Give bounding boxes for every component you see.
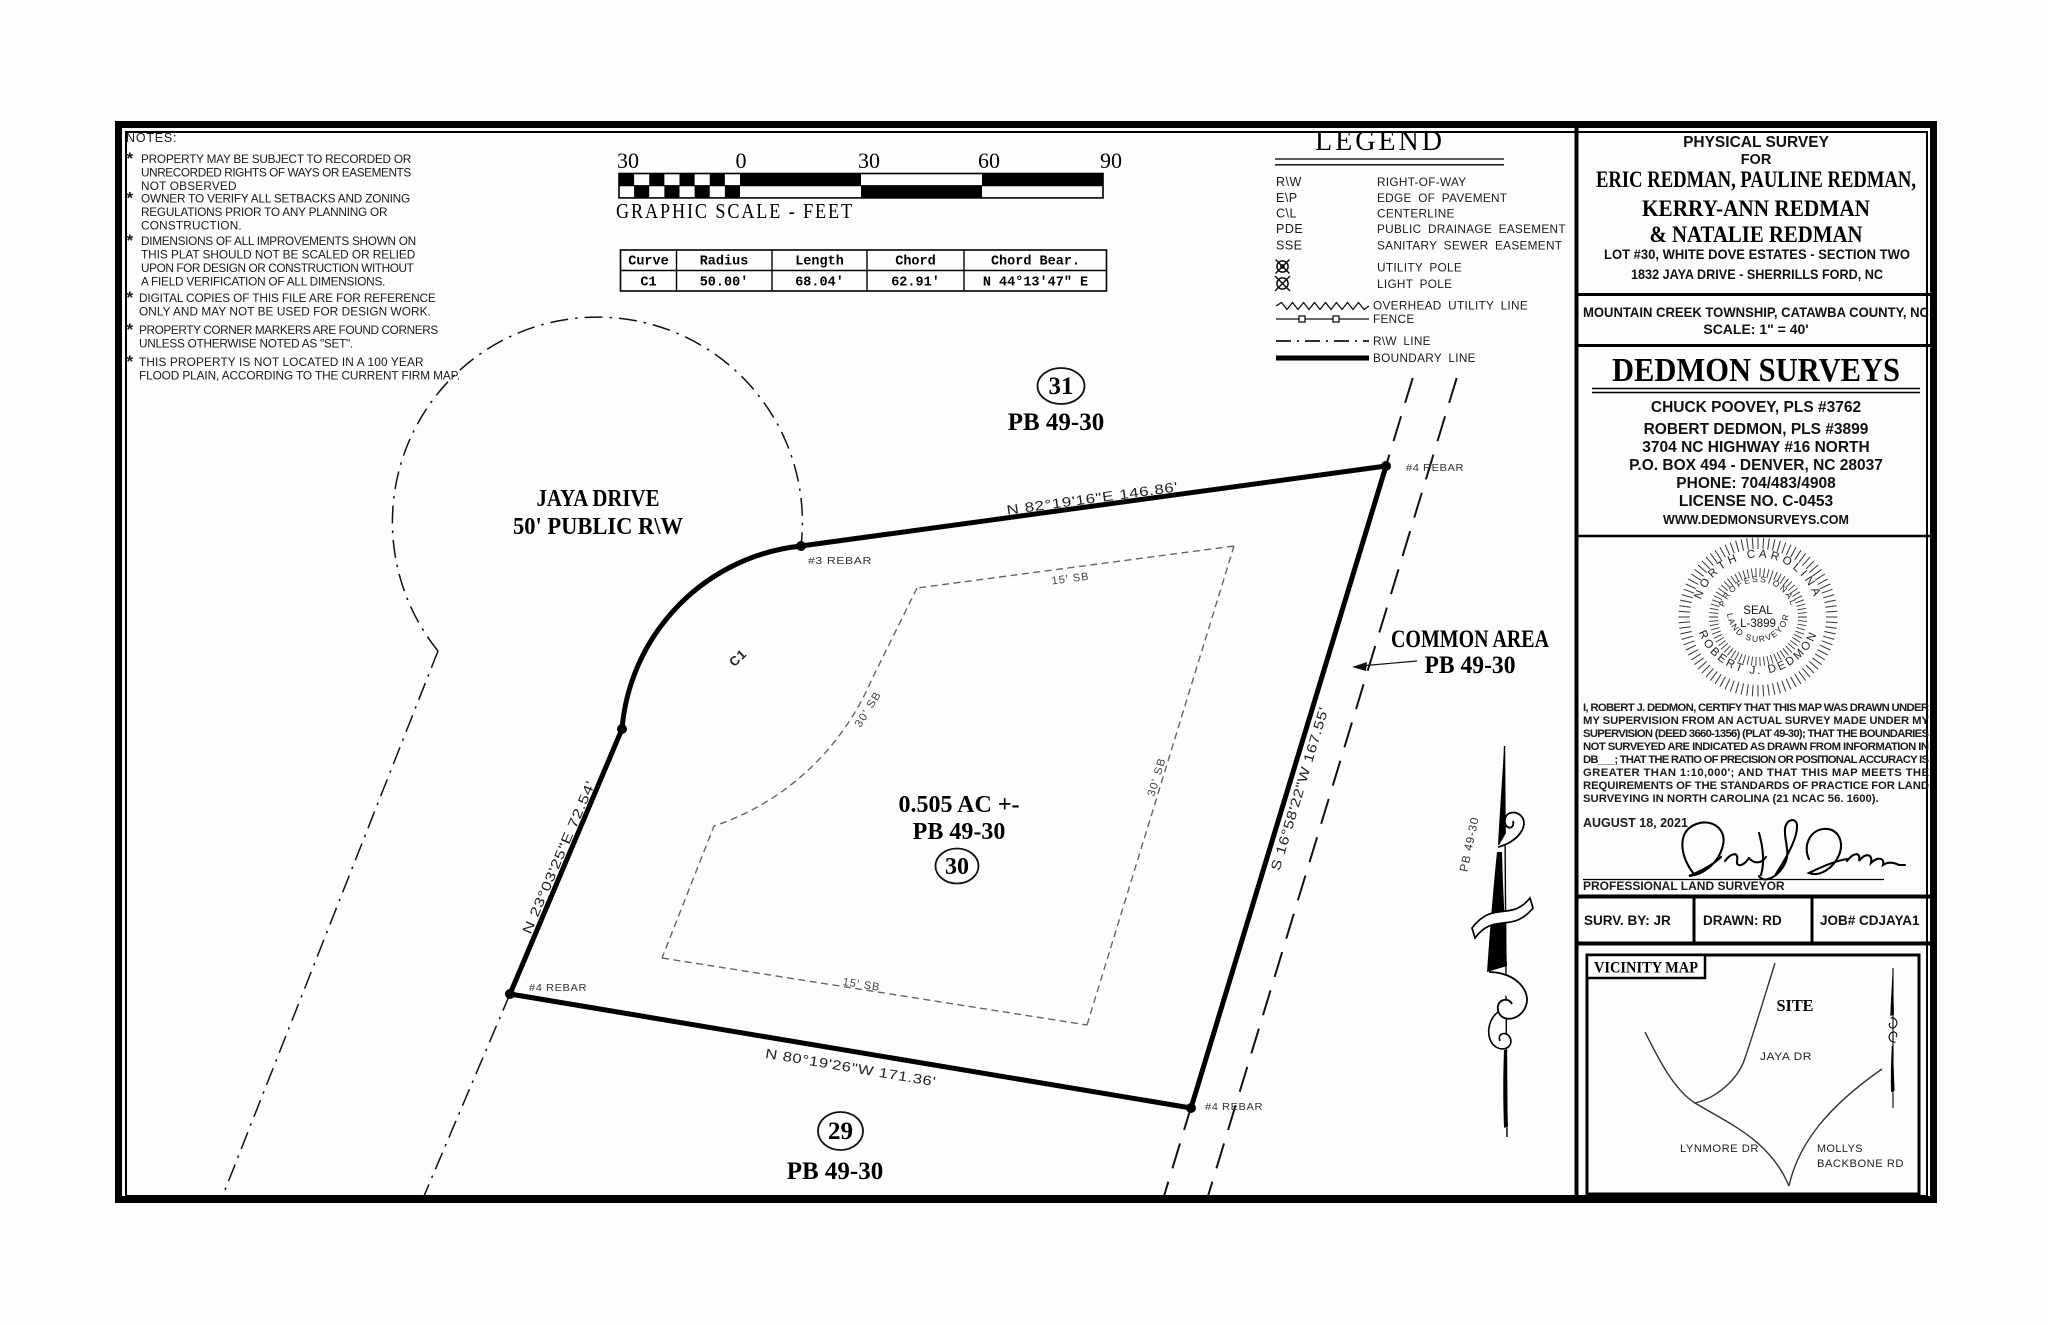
svg-text:C1: C1 bbox=[640, 275, 656, 290]
svg-text:Chord: Chord bbox=[895, 255, 936, 270]
svg-text:60: 60 bbox=[978, 148, 1000, 173]
svg-text:MOLLYS: MOLLYS bbox=[1817, 1143, 1863, 1155]
svg-text:SEAL: SEAL bbox=[1743, 605, 1773, 617]
svg-text:FLOOD PLAIN, ACCORDING TO THE: FLOOD PLAIN, ACCORDING TO THE CURRENT FI… bbox=[139, 369, 460, 383]
svg-text:#3 REBAR: #3 REBAR bbox=[808, 556, 872, 567]
svg-text:DRAWN: RD: DRAWN: RD bbox=[1703, 913, 1782, 928]
svg-text:ONLY AND MAY NOT BE USED FOR D: ONLY AND MAY NOT BE USED FOR DESIGN WORK… bbox=[139, 304, 431, 318]
svg-text:E\P: E\P bbox=[1276, 191, 1298, 205]
svg-text:REGULATIONS PRIOR TO ANY PLANN: REGULATIONS PRIOR TO ANY PLANNING OR bbox=[141, 205, 388, 219]
svg-text:0: 0 bbox=[736, 148, 747, 173]
svg-text:LICENSE NO. C-0453: LICENSE NO. C-0453 bbox=[1679, 493, 1834, 510]
svg-text:30: 30 bbox=[945, 854, 969, 880]
svg-text:NOT SURVEYED ARE INDICATED AS: NOT SURVEYED ARE INDICATED AS DRAWN FROM… bbox=[1583, 741, 1929, 753]
svg-text:& NATALIE REDMAN: & NATALIE REDMAN bbox=[1650, 222, 1863, 247]
svg-text:LOT #30, WHITE DOVE ESTATES -: LOT #30, WHITE DOVE ESTATES - SECTION TW… bbox=[1604, 246, 1910, 262]
svg-text:*: * bbox=[127, 352, 134, 371]
svg-text:Curve: Curve bbox=[628, 255, 669, 270]
svg-text:*: * bbox=[127, 231, 134, 250]
svg-text:RIGHT-OF-WAY: RIGHT-OF-WAY bbox=[1377, 175, 1466, 189]
svg-text:50.00': 50.00' bbox=[700, 275, 749, 290]
svg-text:SANITARY SEWER EASEMENT: SANITARY SEWER EASEMENT bbox=[1377, 239, 1562, 253]
svg-text:68.04': 68.04' bbox=[795, 275, 844, 290]
svg-text:PB 49-30: PB 49-30 bbox=[1425, 652, 1516, 679]
svg-text:OWNER TO VERIFY ALL SETBACKS A: OWNER TO VERIFY ALL SETBACKS AND ZONING bbox=[141, 192, 410, 206]
svg-text:PB 49-30: PB 49-30 bbox=[1008, 409, 1105, 436]
svg-text:*: * bbox=[127, 149, 134, 168]
svg-text:L-3899: L-3899 bbox=[1740, 618, 1776, 630]
svg-text:1832 JAYA DRIVE - SHERRILLS FO: 1832 JAYA DRIVE - SHERRILLS FORD, NC bbox=[1631, 266, 1883, 282]
svg-text:*: * bbox=[127, 320, 134, 339]
svg-text:PROPERTY MAY BE SUBJECT TO REC: PROPERTY MAY BE SUBJECT TO RECORDED OR bbox=[141, 152, 412, 166]
svg-text:P.O. BOX 494 - DENVER, NC 2803: P.O. BOX 494 - DENVER, NC 28037 bbox=[1629, 457, 1883, 474]
svg-text:#4 REBAR: #4 REBAR bbox=[529, 983, 587, 994]
svg-text:MOUNTAIN CREEK TOWNSHIP, CATAW: MOUNTAIN CREEK TOWNSHIP, CATAWBA COUNTY,… bbox=[1583, 304, 1929, 320]
svg-text:THIS PROPERTY IS NOT LOCATED I: THIS PROPERTY IS NOT LOCATED IN A 100 YE… bbox=[139, 355, 424, 369]
svg-text:PHYSICAL SURVEY: PHYSICAL SURVEY bbox=[1683, 134, 1830, 151]
svg-text:NOTES:: NOTES: bbox=[126, 131, 177, 145]
svg-text:ROBERT DEDMON, PLS #3899: ROBERT DEDMON, PLS #3899 bbox=[1644, 421, 1869, 438]
svg-text:30: 30 bbox=[858, 148, 880, 173]
svg-text:29: 29 bbox=[828, 1118, 853, 1145]
svg-text:PDE: PDE bbox=[1276, 222, 1303, 236]
svg-text:DEDMON SURVEYS: DEDMON SURVEYS bbox=[1612, 352, 1900, 389]
svg-text:MY SUPERVISION FROM AN ACTUAL: MY SUPERVISION FROM AN ACTUAL SURVEY MAD… bbox=[1583, 715, 1929, 727]
svg-text:SURVEYING IN NORTH CAROLINA (2: SURVEYING IN NORTH CAROLINA (21 NCAC 56.… bbox=[1583, 793, 1879, 805]
svg-text:I, ROBERT J. DEDMON, CERTIFY T: I, ROBERT J. DEDMON, CERTIFY THAT THIS M… bbox=[1583, 702, 1929, 714]
svg-text:DB___; THAT THE RATIO OF PRECI: DB___; THAT THE RATIO OF PRECISION OR PO… bbox=[1583, 754, 1929, 766]
svg-text:COMMON AREA: COMMON AREA bbox=[1391, 626, 1549, 653]
svg-text:PROFESSIONAL LAND SURVEYOR: PROFESSIONAL LAND SURVEYOR bbox=[1583, 879, 1785, 893]
svg-text:AUGUST 18, 2021: AUGUST 18, 2021 bbox=[1583, 816, 1688, 830]
svg-text:*: * bbox=[127, 288, 134, 307]
svg-text:CONSTRUCTION.: CONSTRUCTION. bbox=[141, 219, 242, 233]
svg-text:FENCE: FENCE bbox=[1373, 312, 1414, 326]
svg-text:ERIC REDMAN, PAULINE REDMAN,: ERIC REDMAN, PAULINE REDMAN, bbox=[1596, 167, 1916, 192]
svg-text:UNRECORDED RIGHTS OF WAYS OR E: UNRECORDED RIGHTS OF WAYS OR EASEMENTS bbox=[141, 166, 411, 180]
svg-text:UPON FOR DESIGN OR CONSTRUCTIO: UPON FOR DESIGN OR CONSTRUCTION WITHOUT bbox=[141, 261, 414, 275]
svg-text:Radius: Radius bbox=[700, 255, 749, 270]
svg-text:31: 31 bbox=[1049, 373, 1074, 400]
svg-text:SSE: SSE bbox=[1276, 239, 1303, 253]
svg-text:GRAPHIC SCALE - FEET: GRAPHIC SCALE - FEET bbox=[616, 199, 854, 223]
svg-text:SITE: SITE bbox=[1777, 996, 1814, 1015]
svg-text:50' PUBLIC R\W: 50' PUBLIC R\W bbox=[513, 514, 683, 540]
svg-text:BACKBONE RD: BACKBONE RD bbox=[1817, 1158, 1904, 1170]
svg-text:R\W: R\W bbox=[1276, 175, 1302, 189]
svg-text:KERRY-ANN REDMAN: KERRY-ANN REDMAN bbox=[1642, 196, 1870, 221]
svg-text:OVERHEAD UTILITY LINE: OVERHEAD UTILITY LINE bbox=[1373, 299, 1528, 313]
svg-text:EDGE OF PAVEMENT: EDGE OF PAVEMENT bbox=[1377, 191, 1507, 205]
svg-text:C\L: C\L bbox=[1276, 207, 1297, 221]
svg-text:LIGHT POLE: LIGHT POLE bbox=[1377, 277, 1452, 291]
svg-text:PB 49-30: PB 49-30 bbox=[787, 1158, 884, 1185]
svg-text:JAYA DR: JAYA DR bbox=[1760, 1051, 1812, 1063]
svg-text:3704 NC HIGHWAY #16 NORTH: 3704 NC HIGHWAY #16 NORTH bbox=[1642, 439, 1869, 456]
svg-text:62.91': 62.91' bbox=[891, 275, 940, 290]
svg-text:R\W LINE: R\W LINE bbox=[1373, 334, 1431, 348]
svg-text:N 44°13'47" E: N 44°13'47" E bbox=[983, 275, 1088, 290]
svg-text:LEGEND: LEGEND bbox=[1315, 126, 1445, 157]
svg-text:*: * bbox=[127, 189, 134, 208]
svg-text:Length: Length bbox=[795, 255, 844, 270]
svg-text:JAYA DRIVE: JAYA DRIVE bbox=[537, 486, 660, 512]
svg-text:BOUNDARY LINE: BOUNDARY LINE bbox=[1373, 351, 1476, 365]
svg-text:Chord Bear.: Chord Bear. bbox=[991, 255, 1080, 270]
svg-text:#4 REBAR: #4 REBAR bbox=[1406, 463, 1464, 474]
svg-text:0.505 AC +-: 0.505 AC +- bbox=[898, 792, 1019, 818]
svg-text:FOR: FOR bbox=[1741, 152, 1772, 168]
svg-text:UNLESS OTHERWISE NOTED AS "SET: UNLESS OTHERWISE NOTED AS "SET". bbox=[139, 336, 353, 350]
svg-text:DIGITAL COPIES OF THIS FILE AR: DIGITAL COPIES OF THIS FILE ARE FOR REFE… bbox=[139, 291, 436, 305]
svg-text:JOB# CDJAYA1: JOB# CDJAYA1 bbox=[1820, 913, 1920, 928]
svg-text:SUPERVISION (DEED 3660-1356) (: SUPERVISION (DEED 3660-1356) (PLAT 49-30… bbox=[1583, 728, 1929, 740]
svg-text:PROPERTY CORNER MARKERS ARE FO: PROPERTY CORNER MARKERS ARE FOUND CORNER… bbox=[139, 323, 438, 337]
svg-text:A FIELD VERIFICATION OF ALL DI: A FIELD VERIFICATION OF ALL DIMENSIONS. bbox=[141, 275, 386, 289]
svg-text:30: 30 bbox=[617, 148, 639, 173]
svg-text:UTILITY POLE: UTILITY POLE bbox=[1377, 261, 1462, 275]
svg-text:CHUCK POOVEY, PLS #3762: CHUCK POOVEY, PLS #3762 bbox=[1651, 399, 1861, 416]
svg-text:PUBLIC DRAINAGE EASEMENT: PUBLIC DRAINAGE EASEMENT bbox=[1377, 222, 1566, 236]
svg-text:CENTERLINE: CENTERLINE bbox=[1377, 207, 1455, 221]
svg-text:REQUIREMENTS OF THE STANDARDS: REQUIREMENTS OF THE STANDARDS OF PRACTIC… bbox=[1583, 780, 1929, 792]
svg-text:90: 90 bbox=[1100, 148, 1122, 173]
svg-text:THIS PLAT SHOULD NOT BE SCALED: THIS PLAT SHOULD NOT BE SCALED OR RELIED bbox=[141, 248, 416, 262]
svg-text:SCALE: 1" = 40': SCALE: 1" = 40' bbox=[1703, 321, 1808, 337]
svg-text:#4 REBAR: #4 REBAR bbox=[1205, 1102, 1263, 1113]
svg-text:DIMENSIONS OF ALL IMPROVEMENTS: DIMENSIONS OF ALL IMPROVEMENTS SHOWN ON bbox=[141, 234, 416, 248]
svg-text:LYNMORE DR: LYNMORE DR bbox=[1680, 1143, 1759, 1155]
svg-text:GREATER THAN 1:10,000'; AND: GREATER THAN 1:10,000'; AND THAT THIS MA… bbox=[1583, 767, 1929, 779]
svg-text:VICINITY MAP: VICINITY MAP bbox=[1594, 960, 1698, 977]
svg-text:PB 49-30: PB 49-30 bbox=[913, 819, 1006, 845]
svg-text:WWW.DEDMONSURVEYS.COM: WWW.DEDMONSURVEYS.COM bbox=[1663, 513, 1849, 527]
svg-text:SURV. BY: JR: SURV. BY: JR bbox=[1584, 913, 1671, 928]
svg-text:PHONE: 704/483/4908: PHONE: 704/483/4908 bbox=[1676, 475, 1836, 492]
